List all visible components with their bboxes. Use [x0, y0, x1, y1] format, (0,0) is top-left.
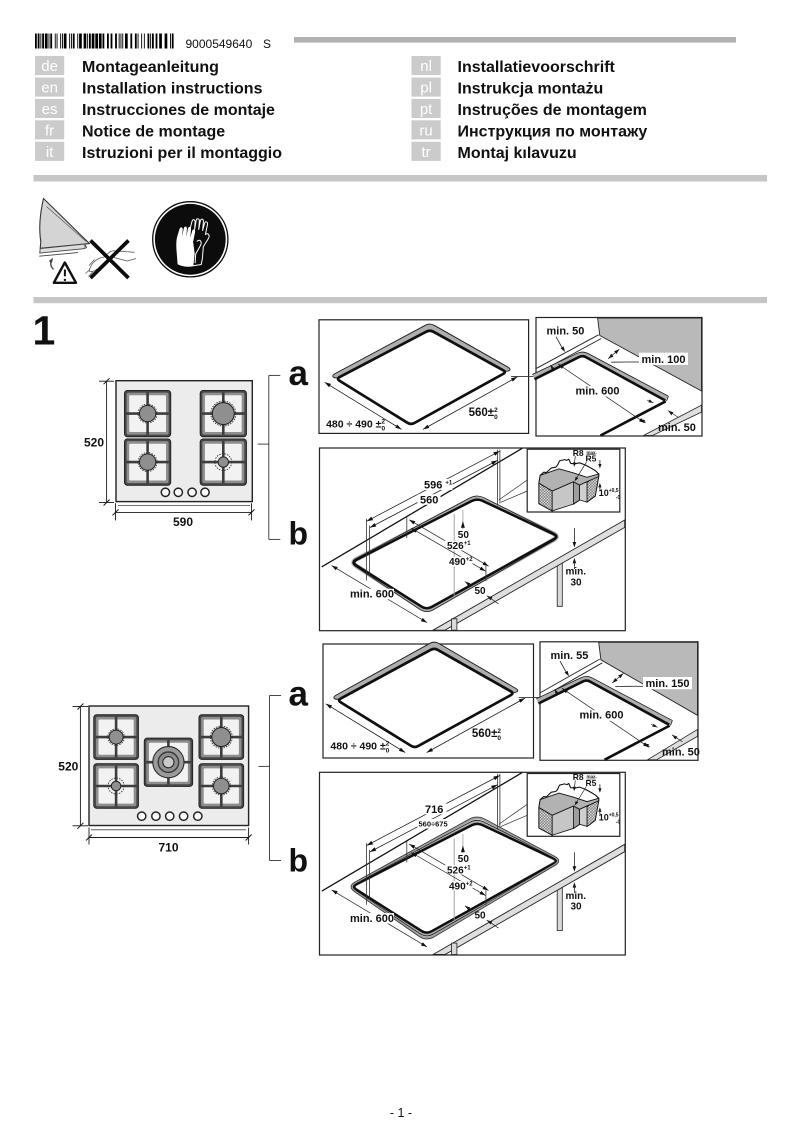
svg-text:30: 30 — [571, 577, 583, 588]
svg-text:de: de — [41, 58, 58, 75]
svg-text:520: 520 — [58, 760, 78, 774]
svg-text:pl: pl — [420, 80, 432, 97]
svg-text:Notice de montage: Notice de montage — [82, 123, 225, 140]
svg-text:min. 600: min. 600 — [580, 710, 624, 722]
svg-text:Montageanleitung: Montageanleitung — [82, 59, 219, 76]
svg-text:fr: fr — [45, 123, 54, 140]
svg-text:a: a — [289, 675, 309, 714]
svg-text:min. 600: min. 600 — [350, 589, 394, 601]
svg-text:b: b — [289, 516, 309, 552]
svg-text:50: 50 — [475, 910, 487, 921]
svg-text:Instruções de montagem: Instruções de montagem — [458, 102, 647, 119]
svg-text:480 ÷ 490 ±20: 480 ÷ 490 ±20 — [330, 740, 389, 754]
svg-text:min.: min. — [566, 567, 587, 578]
svg-text:Инструкция по монтажу: Инструкция по монтажу — [458, 123, 648, 140]
svg-text:min. 50: min. 50 — [547, 326, 585, 338]
svg-text:min. 50: min. 50 — [662, 746, 700, 758]
svg-text:en: en — [41, 80, 58, 97]
svg-text:es: es — [42, 101, 58, 118]
svg-text:min. 100: min. 100 — [642, 354, 686, 366]
svg-text:R8: R8 — [573, 448, 584, 458]
svg-text:560÷675: 560÷675 — [419, 820, 448, 829]
svg-text:30: 30 — [571, 902, 583, 913]
svg-text:520: 520 — [84, 435, 104, 449]
svg-text:480 ÷ 490 ±20: 480 ÷ 490 ±20 — [326, 418, 385, 432]
svg-text:50: 50 — [475, 586, 487, 597]
svg-text:Installatievoorschrift: Installatievoorschrift — [458, 59, 616, 76]
svg-text:min. 600: min. 600 — [576, 385, 620, 397]
svg-text:- 1 -: - 1 - — [390, 1106, 412, 1120]
svg-text:9000549640: 9000549640 — [186, 37, 253, 51]
svg-text:it: it — [46, 144, 54, 161]
svg-text:50: 50 — [458, 530, 470, 541]
svg-text:min. 150: min. 150 — [646, 678, 690, 690]
svg-text:ru: ru — [419, 123, 432, 140]
svg-text:560±20: 560±20 — [472, 728, 502, 742]
svg-text:R8: R8 — [573, 772, 584, 782]
svg-text:Istruzioni per il montaggio: Istruzioni per il montaggio — [82, 145, 282, 162]
svg-text:560: 560 — [420, 494, 438, 506]
svg-text:b: b — [289, 843, 309, 879]
svg-text:560±20: 560±20 — [469, 407, 499, 421]
svg-text:Montaj kılavuzu: Montaj kılavuzu — [458, 145, 577, 162]
svg-text:R5: R5 — [586, 778, 597, 788]
svg-text:Installation instructions: Installation instructions — [82, 81, 263, 98]
svg-text:min. 55: min. 55 — [551, 650, 589, 662]
svg-text:a: a — [289, 354, 309, 393]
svg-text:50: 50 — [458, 854, 470, 865]
svg-text:pt: pt — [420, 101, 433, 118]
svg-text:min. 50: min. 50 — [658, 422, 696, 434]
svg-text:1: 1 — [33, 307, 56, 353]
svg-text:Instrucciones de montaje: Instrucciones de montaje — [82, 102, 275, 119]
svg-text:710: 710 — [158, 841, 178, 855]
svg-text:R5: R5 — [586, 454, 597, 464]
svg-text:S: S — [263, 37, 271, 51]
svg-text:716: 716 — [425, 804, 443, 816]
svg-text:tr: tr — [422, 144, 431, 161]
svg-text:Instrukcja montażu: Instrukcja montażu — [458, 81, 604, 98]
svg-text:min.: min. — [566, 891, 587, 902]
svg-text:nl: nl — [420, 58, 432, 75]
svg-text:min. 600: min. 600 — [350, 913, 394, 925]
svg-text:590: 590 — [173, 515, 193, 529]
